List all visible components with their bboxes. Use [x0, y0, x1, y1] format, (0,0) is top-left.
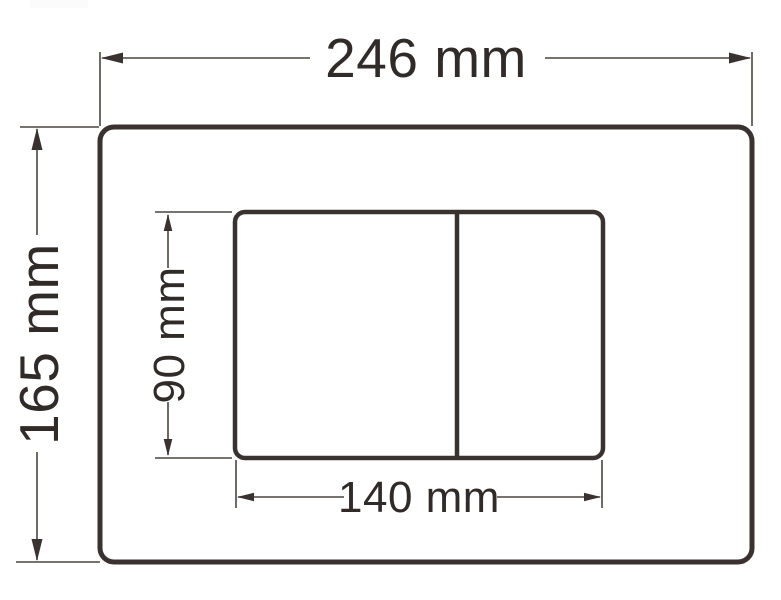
arrowhead-left-icon: [101, 53, 123, 64]
arrowhead-left-small-icon: [237, 493, 254, 502]
button-panel-outline: [235, 212, 603, 458]
scan-artifact-box: [30, 0, 88, 8]
arrowhead-up-small-icon: [164, 214, 173, 231]
arrowhead-down-icon: [32, 539, 43, 561]
arrowhead-up-icon: [32, 128, 43, 150]
flush-plate-dimension-drawing: 246 mm 165 mm 90 mm 140 mm: [0, 0, 781, 600]
dim-label-outer-width: 246 mm: [325, 27, 527, 89]
dim-label-panel-width: 140 mm: [338, 473, 500, 522]
technical-drawing-canvas: 246 mm 165 mm 90 mm 140 mm: [0, 0, 781, 600]
arrowhead-right-icon: [729, 53, 751, 64]
arrowhead-right-small-icon: [584, 493, 601, 502]
dim-label-outer-height: 165 mm: [8, 243, 70, 445]
dim-label-panel-height: 90 mm: [145, 267, 194, 404]
arrowhead-down-small-icon: [164, 439, 173, 456]
